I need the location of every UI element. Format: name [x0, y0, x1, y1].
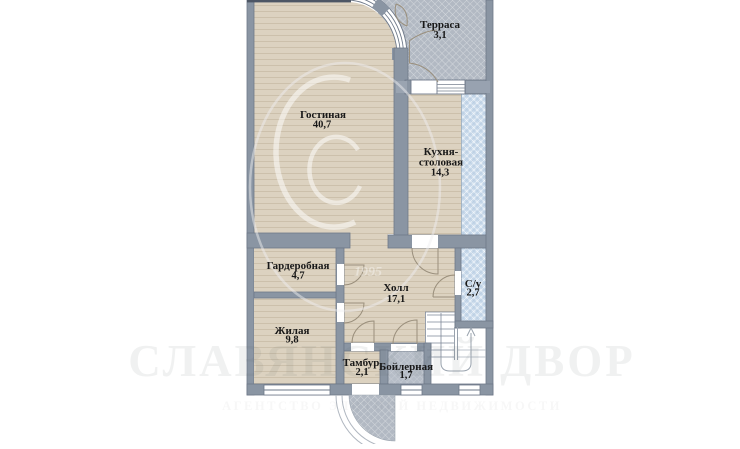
- svg-text:1995: 1995: [354, 265, 382, 280]
- svg-text:17,1: 17,1: [387, 294, 405, 305]
- svg-text:2,7: 2,7: [466, 288, 479, 299]
- svg-text:2,1: 2,1: [355, 367, 368, 378]
- svg-text:Холл: Холл: [383, 282, 408, 294]
- svg-text:9,8: 9,8: [285, 335, 298, 346]
- svg-text:3,1: 3,1: [433, 30, 446, 41]
- svg-text:АГЕНТСТВО ЭЛИТНОЙ НЕДВИЖИМОСТИ: АГЕНТСТВО ЭЛИТНОЙ НЕДВИЖИМОСТИ: [222, 399, 562, 413]
- svg-text:4,7: 4,7: [291, 271, 304, 282]
- svg-text:14,3: 14,3: [431, 168, 449, 179]
- svg-text:1,7: 1,7: [399, 370, 412, 381]
- svg-text:40,7: 40,7: [313, 120, 331, 131]
